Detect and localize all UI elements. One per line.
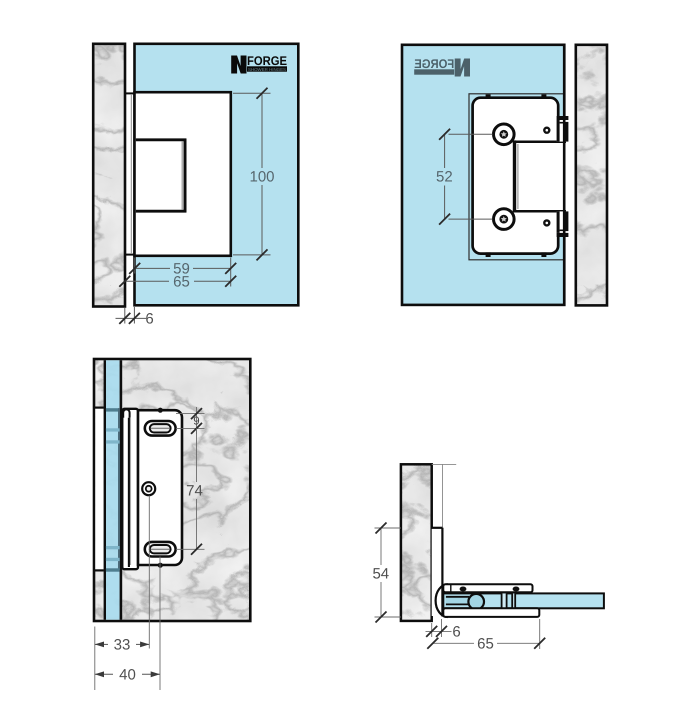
svg-text:74: 74 xyxy=(186,483,203,500)
svg-text:54: 54 xyxy=(372,566,389,583)
svg-text:52: 52 xyxy=(436,169,453,186)
svg-text:6: 6 xyxy=(145,310,153,327)
svg-text:6: 6 xyxy=(452,623,460,640)
svg-text:40: 40 xyxy=(119,666,136,683)
svg-text:100: 100 xyxy=(249,169,274,186)
svg-text:FORGE: FORGE xyxy=(414,57,454,71)
svg-text:65: 65 xyxy=(173,273,190,290)
svg-text:33: 33 xyxy=(114,636,131,653)
svg-text:65: 65 xyxy=(477,635,494,652)
svg-text:SHOWER HINGES: SHOWER HINGES xyxy=(248,67,286,72)
svg-text:9: 9 xyxy=(193,416,199,428)
